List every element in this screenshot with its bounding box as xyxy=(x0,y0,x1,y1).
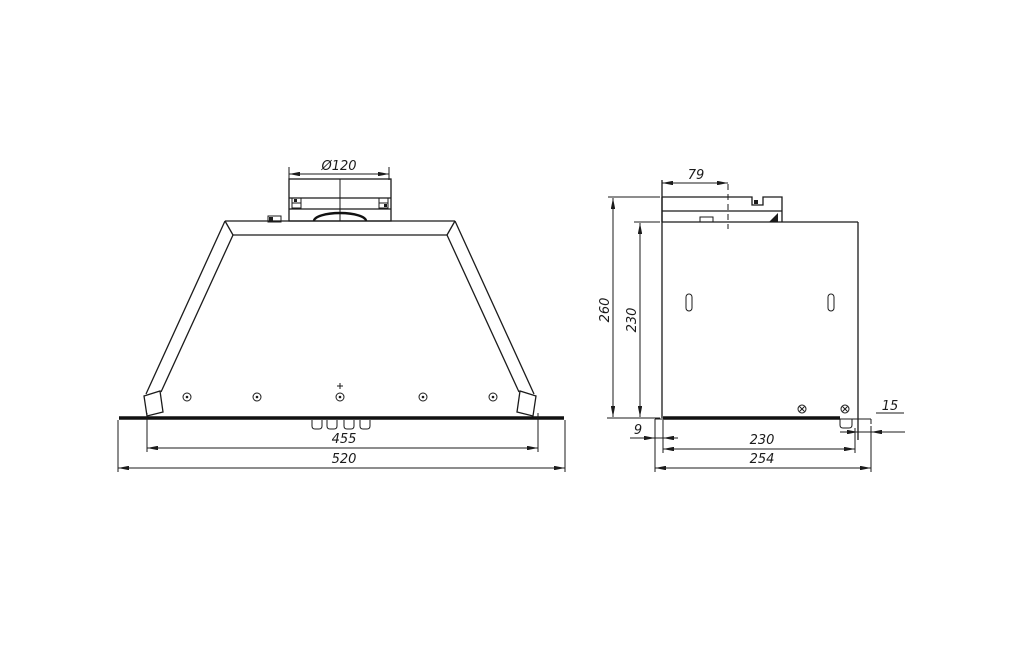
mounting-slot-front xyxy=(828,294,834,311)
dim-body-height: 230 xyxy=(625,222,660,417)
control-buttons xyxy=(312,420,370,429)
dim-overall-width-label: 520 xyxy=(332,452,357,467)
dim-inner-width-label: 455 xyxy=(332,432,357,447)
foot-left xyxy=(144,391,163,416)
dim-front-offset-label: 15 xyxy=(882,399,899,414)
mounting-slot-rear xyxy=(686,294,692,311)
dim-overall-depth-label: 254 xyxy=(750,452,775,467)
dim-duct-offset: 79 xyxy=(662,168,728,183)
center-mark xyxy=(337,383,343,389)
dim-front-offset: 15 xyxy=(840,399,905,432)
screw-holes-front xyxy=(183,393,497,401)
dim-duct-diameter-label: Ø120 xyxy=(320,159,356,174)
front-view: Ø120 455 520 xyxy=(118,159,565,472)
hood-body-side xyxy=(655,197,871,440)
dim-body-depth: 230 xyxy=(663,428,855,453)
dim-overall-height-label: 260 xyxy=(598,298,613,323)
dim-back-offset: 9 xyxy=(630,420,678,453)
dim-back-offset-label: 9 xyxy=(634,423,642,438)
flange-clip-right xyxy=(379,198,388,208)
screws-side xyxy=(798,405,849,413)
latch xyxy=(840,419,852,428)
hood-body xyxy=(119,216,564,429)
dim-overall-height: 260 xyxy=(598,197,660,418)
dim-body-height-label: 230 xyxy=(625,308,640,333)
duct-flange xyxy=(289,179,391,221)
top-bracket-side xyxy=(700,217,713,222)
technical-drawing: Ø120 455 520 xyxy=(0,0,1033,657)
dim-duct-offset-label: 79 xyxy=(688,168,705,183)
drawing-svg: Ø120 455 520 xyxy=(0,0,1033,657)
side-view: 79 260 230 9 230 xyxy=(598,168,905,472)
foot-right xyxy=(517,391,536,416)
weld-mark xyxy=(769,213,778,222)
dim-duct-diameter: Ø120 xyxy=(289,159,389,180)
flange-clip-left xyxy=(292,198,301,208)
dim-body-depth-label: 230 xyxy=(750,433,775,448)
